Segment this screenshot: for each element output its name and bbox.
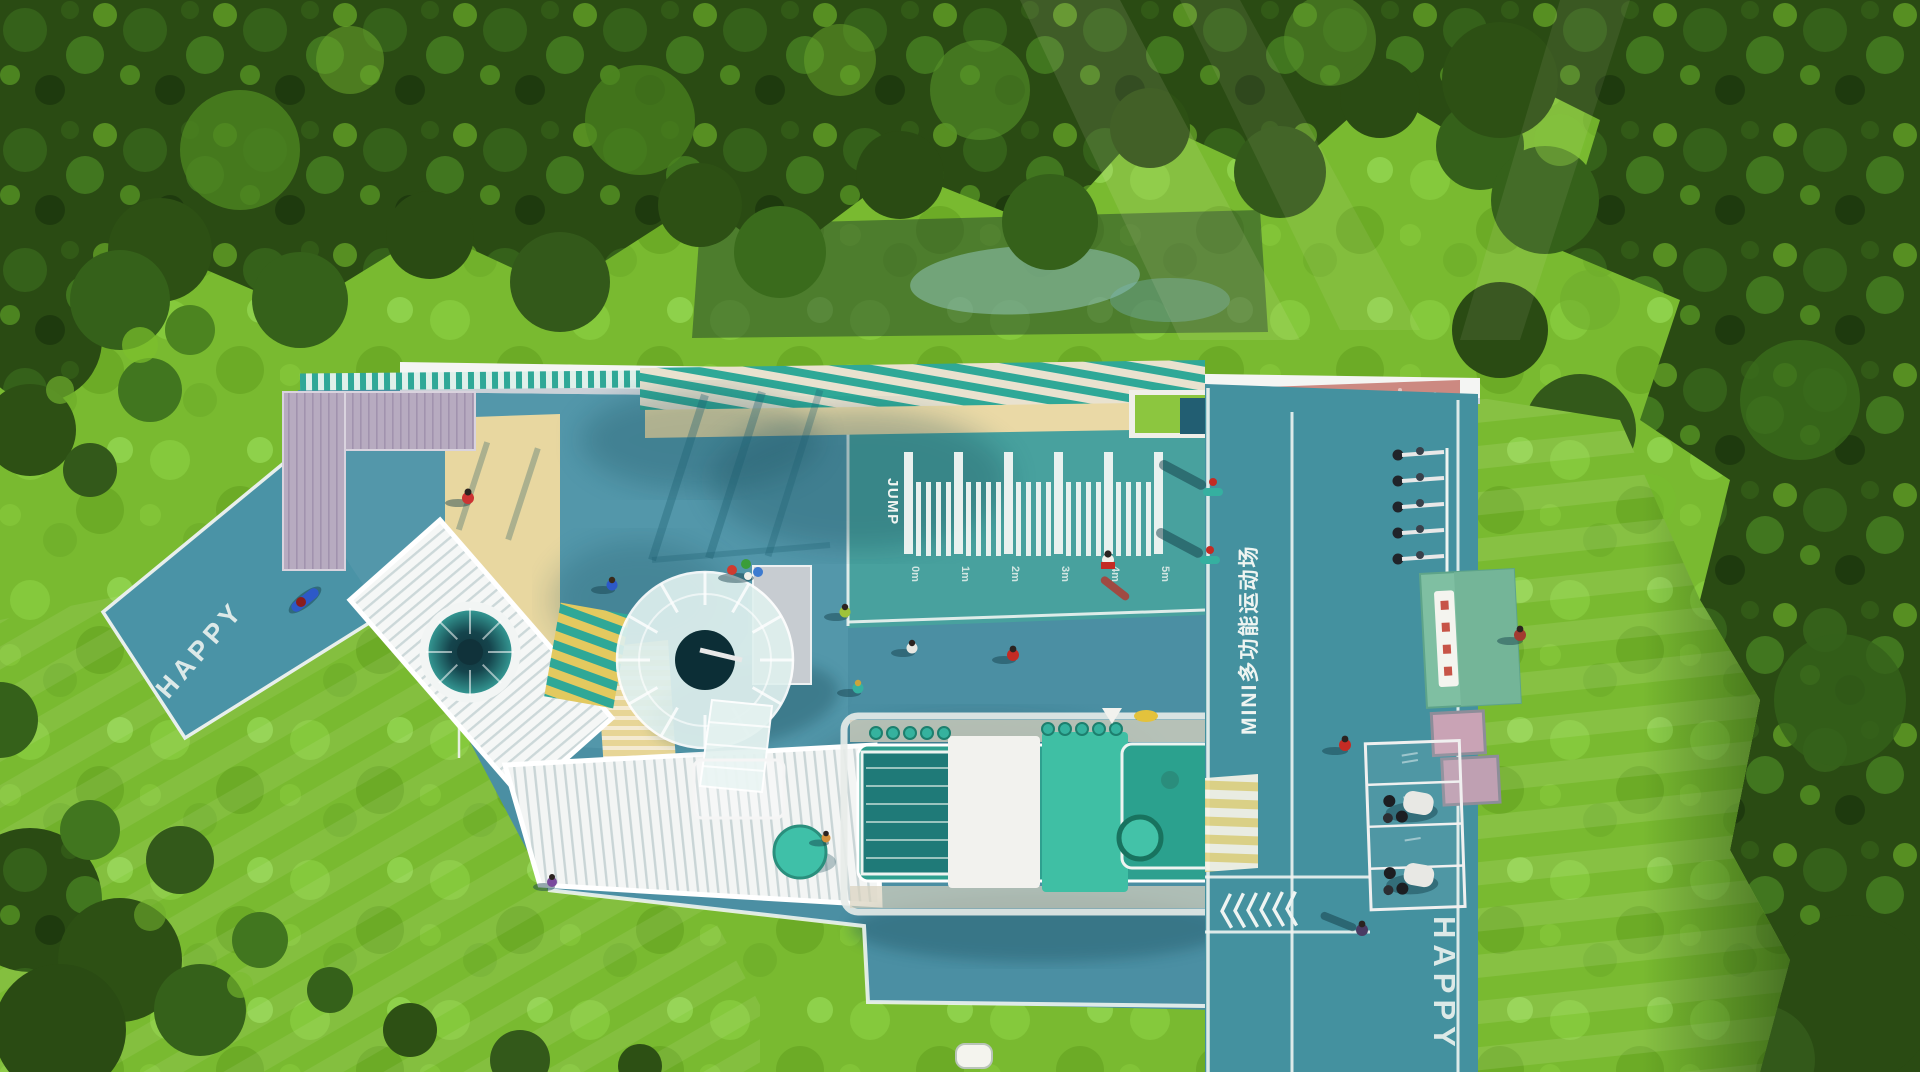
- svg-text:5m: 5m: [1159, 566, 1171, 582]
- train-canopy-teal: [1042, 732, 1128, 892]
- picket-fence: [300, 371, 640, 391]
- crossing-stripes: [1205, 774, 1258, 872]
- jump-label: JUMP: [884, 478, 901, 526]
- court-name-label: MINI多功能运动场: [1237, 545, 1261, 735]
- svg-text:2m: 2m: [1009, 566, 1021, 582]
- cube-box: [1180, 398, 1206, 434]
- bottom-marker: [956, 1044, 992, 1068]
- train-canopy-white: [948, 736, 1040, 888]
- svg-text:3m: 3m: [1059, 566, 1071, 582]
- scene-canvas: HAPPY JUMP: [0, 0, 1920, 1072]
- svg-text:0m: 0m: [909, 566, 921, 582]
- happy-right-label: HAPPY: [1427, 916, 1462, 1053]
- train-structure: [844, 708, 1240, 962]
- ring-climber: [424, 606, 516, 698]
- duck-toy: [1134, 710, 1158, 722]
- slide-exit-pad: [694, 760, 784, 818]
- stroller-parking: [1365, 741, 1465, 910]
- aerial-playground-render: HAPPY JUMP: [0, 0, 1920, 1072]
- svg-text:1m: 1m: [959, 566, 971, 582]
- train-flat-car: [862, 752, 954, 874]
